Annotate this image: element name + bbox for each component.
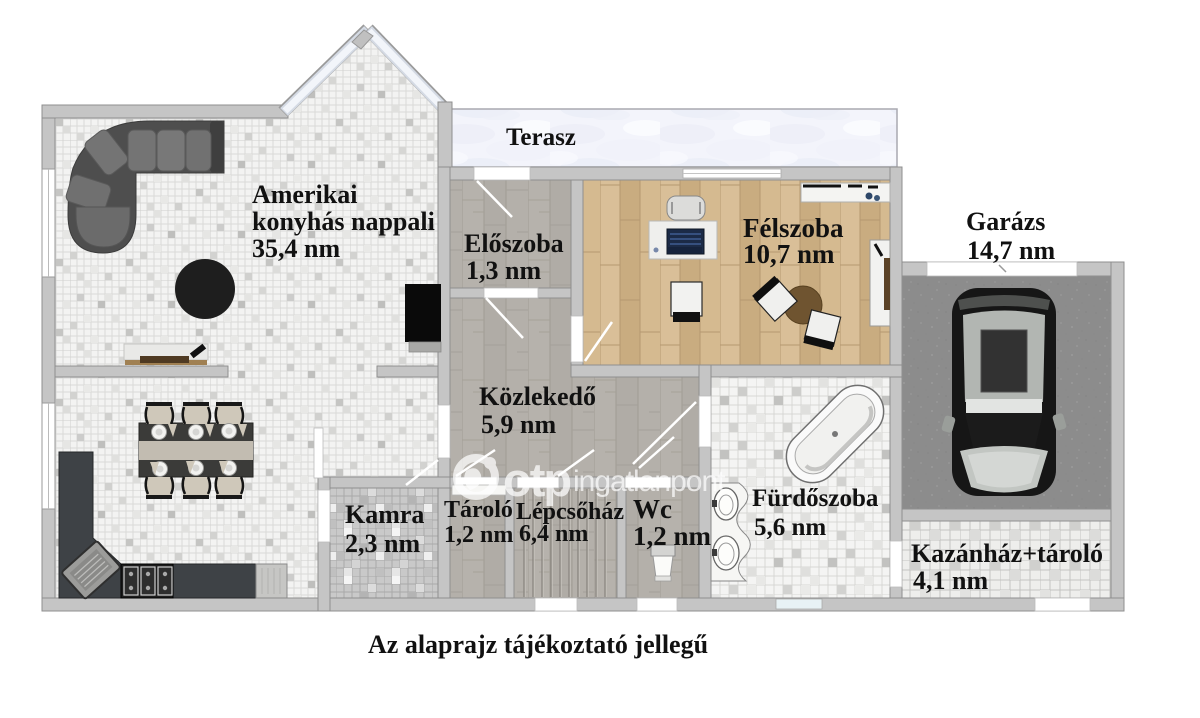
svg-text:Terasz: Terasz xyxy=(506,124,576,151)
svg-text:Kazánház+tároló: Kazánház+tároló xyxy=(911,539,1103,568)
svg-text:otp: otp xyxy=(503,453,570,506)
svg-text:1,3 nm: 1,3 nm xyxy=(466,256,541,285)
svg-text:14,7 nm: 14,7 nm xyxy=(967,236,1055,265)
svg-text:Amerikai: Amerikai xyxy=(252,180,357,209)
svg-text:Előszoba: Előszoba xyxy=(464,229,564,258)
svg-text:35,4 nm: 35,4 nm xyxy=(252,234,340,263)
svg-text:konyhás nappali: konyhás nappali xyxy=(252,207,435,236)
svg-text:5,9 nm: 5,9 nm xyxy=(481,410,556,439)
svg-text:4,1 nm: 4,1 nm xyxy=(913,566,988,595)
svg-text:6,4 nm: 6,4 nm xyxy=(519,521,588,547)
svg-text:5,6 nm: 5,6 nm xyxy=(754,514,826,541)
svg-text:ingatlanpont: ingatlanpont xyxy=(573,465,726,498)
svg-text:Fürdőszoba: Fürdőszoba xyxy=(752,485,879,512)
svg-text:Közlekedő: Közlekedő xyxy=(479,382,596,411)
svg-text:2,3 nm: 2,3 nm xyxy=(345,529,420,558)
svg-text:Kamra: Kamra xyxy=(345,500,424,529)
svg-text:1,2 nm: 1,2 nm xyxy=(633,521,712,551)
svg-text:1,2 nm: 1,2 nm xyxy=(444,522,513,548)
svg-text:Az alaprajz tájékoztató jelleg: Az alaprajz tájékoztató jellegű xyxy=(368,630,708,659)
svg-text:10,7 nm: 10,7 nm xyxy=(743,239,835,269)
svg-text:Wc: Wc xyxy=(633,494,672,524)
svg-text:Garázs: Garázs xyxy=(966,207,1045,236)
